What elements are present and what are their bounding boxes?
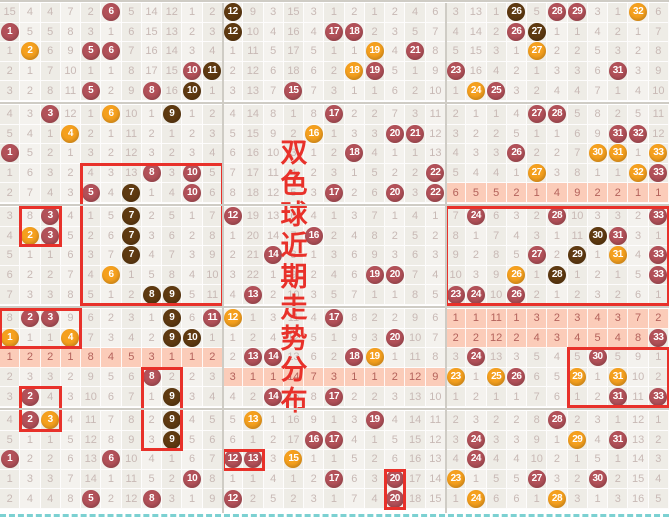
- grid-cell: 1: [81, 62, 101, 82]
- grid-cell: 15: [284, 387, 304, 407]
- grid-cell: 4: [142, 246, 162, 266]
- grid-cell: 1: [324, 3, 344, 23]
- grid-cell: 1: [203, 329, 223, 349]
- grid-cell: 2: [0, 368, 20, 388]
- grid-cell: 7: [345, 285, 365, 305]
- grid-cell: 1: [101, 285, 121, 305]
- grid-cell: 1: [507, 309, 527, 329]
- grid-cell: 6: [101, 227, 121, 247]
- grid-cell: 4: [628, 81, 648, 101]
- grid-cell: 23: [446, 470, 466, 490]
- grid-cell: 2: [365, 105, 385, 125]
- grid-cell: 11: [203, 62, 223, 82]
- grid-cell: 1: [446, 81, 466, 101]
- section-separator: [0, 306, 669, 308]
- grid-cell: 9: [203, 246, 223, 266]
- grid-cell: 4: [20, 3, 40, 23]
- grid-cell: 5: [61, 227, 81, 247]
- grid-cell: 7: [122, 387, 142, 407]
- grid-cell: 12: [426, 125, 446, 145]
- grid-cell: 5: [41, 23, 61, 43]
- lottery-ball: 15: [284, 82, 302, 100]
- grid-cell: 19: [365, 266, 385, 286]
- grid-cell: 7: [41, 62, 61, 82]
- grid-cell: 8: [365, 227, 385, 247]
- grid-cell: 3: [345, 207, 365, 227]
- grid-cell: 25: [487, 81, 507, 101]
- grid-cell: 3: [345, 125, 365, 145]
- grid-cell: 17: [324, 183, 344, 203]
- grid-cell: 17: [324, 23, 344, 43]
- grid-cell: 16: [304, 227, 324, 247]
- grid-cell: 2: [142, 125, 162, 145]
- grid-cell: 4: [588, 309, 608, 329]
- grid-cell: 11: [426, 105, 446, 125]
- grid-cell: 7: [365, 207, 385, 227]
- grid-cell: 7: [304, 81, 324, 101]
- grid-cell: 20: [385, 489, 405, 509]
- grid-cell: 2: [142, 207, 162, 227]
- grid-cell: 1: [61, 348, 81, 368]
- grid-cell: 7: [304, 368, 324, 388]
- grid-cell: 4: [507, 105, 527, 125]
- lottery-ball: 19: [366, 411, 384, 429]
- lottery-ball: 18: [345, 23, 363, 41]
- lottery-ball: 33: [649, 207, 667, 225]
- grid-cell: 30: [588, 144, 608, 164]
- grid-cell: 1: [365, 3, 385, 23]
- grid-cell: 1: [101, 125, 121, 145]
- grid-cell: 9: [162, 411, 182, 431]
- grid-cell: 2: [41, 144, 61, 164]
- grid-cell: 2: [466, 125, 486, 145]
- lottery-ball: 12: [224, 23, 242, 41]
- lottery-ball: 11: [203, 309, 221, 327]
- grid-cell: 2: [385, 309, 405, 329]
- grid-cell: 7: [122, 227, 142, 247]
- grid-cell: 7: [61, 266, 81, 286]
- grid-cell: 8: [284, 246, 304, 266]
- grid-cell: 3: [446, 125, 466, 145]
- grid-cell: 5: [324, 285, 344, 305]
- lottery-ball: 27: [528, 470, 546, 488]
- grid-cell: 3: [0, 81, 20, 101]
- grid-cell: 3: [304, 3, 324, 23]
- grid-cell: 5: [487, 470, 507, 490]
- lottery-ball: 12: [224, 490, 242, 508]
- bottom-dashed-divider: [0, 514, 669, 517]
- grid-cell: 6: [507, 489, 527, 509]
- grid-cell: 5: [568, 348, 588, 368]
- grid-cell: 2: [61, 368, 81, 388]
- grid-cell: 1: [284, 470, 304, 490]
- grid-cell: 1: [304, 450, 324, 470]
- lottery-ball: 6: [102, 3, 120, 21]
- lottery-trend-chart: 1544726514121212931531212463131265282931…: [0, 0, 669, 521]
- grid-cell: 33: [649, 207, 669, 227]
- grid-cell: 12: [649, 125, 669, 145]
- grid-cell: 3: [304, 489, 324, 509]
- grid-cell: 21: [405, 125, 425, 145]
- grid-cell: 3: [588, 411, 608, 431]
- grid-cell: 4: [568, 329, 588, 349]
- grid-cell: 1: [345, 81, 365, 101]
- grid-cell: 9: [162, 105, 182, 125]
- grid-cell: 2: [608, 105, 628, 125]
- grid-cell: 2: [304, 164, 324, 184]
- grid-cell: 3: [41, 227, 61, 247]
- grid-cell: 2: [649, 368, 669, 388]
- grid-cell: 4: [304, 207, 324, 227]
- grid-cell: 2: [162, 144, 182, 164]
- grid-cell: 3: [649, 450, 669, 470]
- grid-cell: 1: [41, 246, 61, 266]
- grid-cell: 6: [446, 183, 466, 203]
- grid-cell: 2: [466, 329, 486, 349]
- grid-cell: 12: [487, 329, 507, 349]
- grid-cell: 1: [0, 348, 20, 368]
- grid-cell: 1: [365, 285, 385, 305]
- grid-cell: 17: [324, 387, 344, 407]
- lottery-ball: 16: [305, 227, 323, 245]
- grid-cell: 3: [527, 227, 547, 247]
- grid-cell: 3: [223, 81, 243, 101]
- grid-cell: 6: [101, 105, 121, 125]
- grid-cell: 31: [608, 144, 628, 164]
- grid-cell: 3: [547, 470, 567, 490]
- grid-cell: 3: [324, 164, 344, 184]
- grid-cell: 1: [122, 266, 142, 286]
- grid-cell: 7: [101, 411, 121, 431]
- grid-cell: 3: [182, 144, 202, 164]
- grid-cell: 9: [568, 183, 588, 203]
- grid-cell: 2: [466, 246, 486, 266]
- grid-cell: 2: [487, 411, 507, 431]
- grid-cell: 2: [385, 227, 405, 247]
- grid-cell: 1: [466, 368, 486, 388]
- grid-cell: 6: [162, 227, 182, 247]
- grid-cell: 1: [182, 348, 202, 368]
- grid-cell: 5: [588, 42, 608, 62]
- grid-cell: 2: [41, 266, 61, 286]
- grid-cell: 5: [385, 431, 405, 451]
- grid-cell: 6: [182, 450, 202, 470]
- lottery-ball: 10: [183, 82, 201, 100]
- lottery-ball: 26: [507, 266, 525, 284]
- grid-cell: 19: [365, 62, 385, 82]
- grid-cell: 1: [385, 207, 405, 227]
- grid-cell: 7: [122, 246, 142, 266]
- grid-cell: 3: [223, 368, 243, 388]
- grid-cell: 9: [203, 489, 223, 509]
- grid-cell: 6: [101, 42, 121, 62]
- grid-cell: 5: [81, 489, 101, 509]
- grid-cell: 2: [264, 431, 284, 451]
- grid-cell: 1: [20, 329, 40, 349]
- grid-cell: 1: [649, 227, 669, 247]
- grid-cell: 1: [284, 105, 304, 125]
- grid-cell: 1: [588, 368, 608, 388]
- section-separator: [0, 0, 669, 2]
- lottery-ball: 20: [386, 266, 404, 284]
- grid-cell: 24: [466, 285, 486, 305]
- grid-cell: 7: [568, 144, 588, 164]
- grid-cell: 3: [324, 81, 344, 101]
- grid-cell: 2: [203, 105, 223, 125]
- grid-cell: 1: [81, 207, 101, 227]
- lottery-ball: 14: [264, 246, 282, 264]
- grid-cell: 1: [101, 23, 121, 43]
- lottery-ball: 28: [548, 266, 566, 284]
- grid-cell: 8: [142, 164, 162, 184]
- grid-cell: 2: [101, 489, 121, 509]
- grid-cell: 3: [547, 62, 567, 82]
- grid-cell: 4: [61, 207, 81, 227]
- grid-cell: 8: [649, 42, 669, 62]
- grid-cell: 4: [487, 164, 507, 184]
- lottery-ball: 31: [609, 227, 627, 245]
- lottery-ball: 28: [548, 411, 566, 429]
- grid-cell: 13: [466, 3, 486, 23]
- grid-cell: 11: [61, 81, 81, 101]
- lottery-ball: 33: [649, 144, 667, 162]
- grid-cell: 11: [649, 105, 669, 125]
- lottery-ball: 17: [325, 431, 343, 449]
- grid-cell: 4: [547, 348, 567, 368]
- grid-cell: 5: [487, 183, 507, 203]
- lottery-ball: 24: [467, 431, 485, 449]
- lottery-ball: 7: [122, 207, 140, 225]
- grid-cell: 1: [487, 387, 507, 407]
- grid-cell: 9: [162, 329, 182, 349]
- grid-cell: 2: [365, 450, 385, 470]
- grid-cell: 14: [264, 227, 284, 247]
- grid-cell: 5: [20, 23, 40, 43]
- grid-cell: 10: [182, 329, 202, 349]
- lottery-ball: 23: [447, 62, 465, 80]
- grid-cell: 3: [284, 144, 304, 164]
- grid-cell: 2: [446, 411, 466, 431]
- lottery-ball: 17: [325, 470, 343, 488]
- grid-cell: 8: [264, 105, 284, 125]
- grid-cell: 3: [446, 348, 466, 368]
- grid-cell: 1: [182, 207, 202, 227]
- grid-cell: 5: [122, 348, 142, 368]
- grid-cell: 4: [487, 450, 507, 470]
- grid-cell: 17: [324, 470, 344, 490]
- lottery-ball: 22: [426, 164, 444, 182]
- grid-cell: 1: [101, 470, 121, 490]
- grid-cell: 4: [203, 387, 223, 407]
- grid-cell: 1: [0, 329, 20, 349]
- grid-cell: 16: [304, 431, 324, 451]
- grid-cell: 22: [426, 164, 446, 184]
- grid-cell: 9: [243, 3, 263, 23]
- grid-cell: 1: [385, 144, 405, 164]
- grid-cell: 1: [324, 489, 344, 509]
- grid-cell: 2: [324, 62, 344, 82]
- grid-cell: 9: [405, 309, 425, 329]
- grid-cell: 1: [345, 368, 365, 388]
- grid-cell: 22: [426, 183, 446, 203]
- grid-cell: 1: [446, 387, 466, 407]
- grid-cell: 5: [507, 246, 527, 266]
- lottery-ball: 12: [224, 450, 242, 468]
- grid-cell: 15: [162, 62, 182, 82]
- grid-cell: 15: [284, 3, 304, 23]
- grid-cell: 1: [487, 3, 507, 23]
- grid-cell: 5: [0, 125, 20, 145]
- lottery-ball: 8: [143, 82, 161, 100]
- lottery-ball: 5: [82, 42, 100, 60]
- grid-cell: 12: [81, 431, 101, 451]
- grid-cell: 1: [527, 125, 547, 145]
- lottery-ball: 19: [366, 348, 384, 366]
- grid-cell: 6: [649, 3, 669, 23]
- grid-cell: 1: [223, 42, 243, 62]
- grid-cell: 7: [101, 246, 121, 266]
- grid-cell: 10: [284, 285, 304, 305]
- grid-cell: 3: [568, 309, 588, 329]
- grid-cell: 12: [223, 309, 243, 329]
- grid-cell: 2: [203, 348, 223, 368]
- grid-cell: 32: [628, 164, 648, 184]
- grid-cell: 20: [385, 125, 405, 145]
- grid-cell: 14: [264, 348, 284, 368]
- grid-cell: 10: [182, 470, 202, 490]
- grid-cell: 3: [182, 42, 202, 62]
- lottery-ball: 28: [548, 3, 566, 21]
- lottery-ball: 2: [21, 388, 39, 406]
- lottery-ball: 29: [568, 3, 586, 21]
- grid-cell: 3: [385, 246, 405, 266]
- grid-cell: 13: [264, 207, 284, 227]
- grid-cell: 3: [304, 285, 324, 305]
- grid-cell: 17: [405, 470, 425, 490]
- grid-cell: 16: [304, 125, 324, 145]
- grid-cell: 10: [446, 266, 466, 286]
- grid-cell: 8: [588, 105, 608, 125]
- grid-cell: 14: [466, 23, 486, 43]
- grid-cell: 7: [0, 285, 20, 305]
- grid-cell: 1: [608, 3, 628, 23]
- grid-cell: 4: [0, 411, 20, 431]
- grid-cell: 24: [466, 81, 486, 101]
- lottery-ball: 24: [467, 207, 485, 225]
- grid-cell: 4: [446, 23, 466, 43]
- lottery-ball: 24: [467, 490, 485, 508]
- grid-cell: 5: [426, 285, 446, 305]
- grid-cell: 4: [446, 450, 466, 470]
- grid-cell: 3: [588, 3, 608, 23]
- grid-cell: 3: [568, 62, 588, 82]
- grid-cell: 18: [345, 144, 365, 164]
- lottery-ball: 13: [244, 411, 262, 429]
- grid-cell: 8: [446, 227, 466, 247]
- grid-cell: 2: [142, 411, 162, 431]
- grid-cell: 2: [365, 309, 385, 329]
- grid-cell: 4: [324, 266, 344, 286]
- grid-cell: 9: [162, 431, 182, 451]
- grid-cell: 3: [608, 207, 628, 227]
- grid-cell: 31: [608, 227, 628, 247]
- grid-cell: 2: [324, 348, 344, 368]
- grid-cell: 5: [101, 207, 121, 227]
- lottery-ball: 7: [122, 246, 140, 264]
- grid-cell: 2: [568, 285, 588, 305]
- grid-cell: 7: [345, 489, 365, 509]
- lottery-ball: 33: [649, 329, 667, 347]
- grid-cell: 1: [324, 42, 344, 62]
- grid-cell: 3: [628, 227, 648, 247]
- lottery-ball: 1: [1, 329, 19, 347]
- grid-cell: 4: [568, 81, 588, 101]
- grid-cell: 8: [101, 431, 121, 451]
- grid-cell: 2: [182, 23, 202, 43]
- lottery-ball: 11: [203, 62, 221, 80]
- grid-cell: 7: [20, 183, 40, 203]
- grid-cell: 12: [243, 62, 263, 82]
- grid-cell: 2: [41, 348, 61, 368]
- grid-cell: 13: [162, 23, 182, 43]
- grid-cell: 1: [142, 183, 162, 203]
- lottery-ball: 30: [589, 470, 607, 488]
- grid-cell: 11: [426, 411, 446, 431]
- grid-cell: 4: [41, 489, 61, 509]
- grid-cell: 11: [243, 42, 263, 62]
- grid-cell: 2: [568, 470, 588, 490]
- grid-cell: 3: [264, 450, 284, 470]
- grid-cell: 6: [426, 309, 446, 329]
- grid-cell: 2: [547, 450, 567, 470]
- grid-cell: 19: [243, 207, 263, 227]
- grid-cell: 1: [507, 164, 527, 184]
- grid-cell: 6: [223, 431, 243, 451]
- grid-cell: 2: [426, 227, 446, 247]
- grid-cell: 1: [243, 470, 263, 490]
- grid-cell: 31: [608, 368, 628, 388]
- grid-cell: 9: [61, 309, 81, 329]
- grid-cell: 16: [466, 62, 486, 82]
- grid-cell: 2: [162, 368, 182, 388]
- grid-cell: 2: [588, 387, 608, 407]
- lottery-ball: 26: [507, 286, 525, 304]
- grid-cell: 2: [365, 387, 385, 407]
- grid-cell: 4: [304, 309, 324, 329]
- grid-cell: 5: [547, 368, 567, 388]
- grid-cell: 2: [20, 266, 40, 286]
- grid-cell: 6: [122, 23, 142, 43]
- grid-cell: 14: [162, 42, 182, 62]
- grid-cell: 13: [628, 431, 648, 451]
- grid-cell: 2: [20, 450, 40, 470]
- grid-cell: 6: [304, 62, 324, 82]
- lottery-ball: 12: [224, 309, 242, 327]
- grid-cell: 1: [41, 125, 61, 145]
- lottery-ball: 9: [163, 286, 181, 304]
- grid-cell: 2: [304, 266, 324, 286]
- grid-cell: 1: [649, 348, 669, 368]
- grid-cell: 1: [324, 450, 344, 470]
- grid-cell: 8: [81, 348, 101, 368]
- grid-cell: 2: [101, 309, 121, 329]
- grid-cell: 7: [122, 183, 142, 203]
- lottery-ball: 18: [345, 144, 363, 162]
- grid-cell: 5: [446, 164, 466, 184]
- grid-cell: 9: [122, 81, 142, 101]
- grid-cell: 3: [405, 183, 425, 203]
- grid-cell: 5: [81, 42, 101, 62]
